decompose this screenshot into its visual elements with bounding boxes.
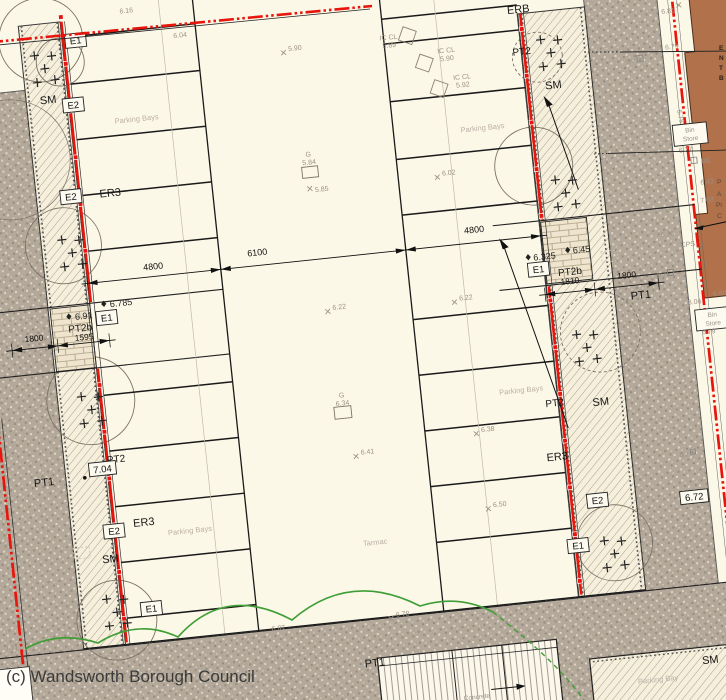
level-678-b: 6.78	[396, 611, 410, 619]
plan-rotated-group: 4800 6100 4800 1800 1595 1810 1800	[0, 0, 726, 700]
label-sm-left-top: SM	[39, 94, 57, 108]
label-7-04: 7.04	[93, 463, 113, 476]
label-e1-right-low: E1	[572, 541, 585, 553]
edge-note-t2: N	[719, 55, 724, 62]
gully-g-2: G	[339, 392, 345, 400]
label-6-72: 6.72	[684, 491, 704, 504]
label-sm-right-mid: SM	[592, 396, 610, 410]
level-691: 6.91	[74, 310, 92, 322]
level-676: 6.76	[660, 231, 674, 239]
label-e2-left-top: E2	[67, 100, 80, 112]
label-pt1-right: PT1	[630, 289, 651, 303]
copyright-text: (c) Wandsworth Borough Council	[6, 667, 255, 686]
dim-6100: 6100	[247, 247, 268, 259]
dim-1800-left: 1800	[24, 332, 44, 344]
level-650: 6.50	[493, 501, 507, 509]
dim-1800-right: 1800	[617, 269, 637, 281]
level-604: 6.04	[173, 32, 187, 40]
label-gv-1: GV	[626, 58, 637, 66]
label-re: RE	[701, 158, 712, 166]
label-er3-left-low: ER3	[133, 516, 156, 530]
label-pt1-left: PT1	[33, 476, 54, 490]
edge-note-t1: E	[719, 45, 724, 52]
ic-1-level: 5.89	[382, 42, 396, 50]
edge-note-m1: P	[717, 179, 721, 186]
label-pt2-right-mid: PT2	[545, 397, 565, 410]
level-679-b: 6.79	[702, 328, 716, 336]
label-e1-left-path: E1	[100, 313, 113, 325]
level-584: 5.84	[302, 159, 316, 167]
label-e1-right-path: E1	[532, 264, 545, 276]
level-602: 6.02	[442, 169, 456, 177]
label-er3-left-top: ER3	[99, 186, 122, 200]
level-711: 7.11	[5, 645, 19, 653]
label-gv-2: GV	[656, 272, 667, 280]
level-806: 8.06	[688, 298, 702, 306]
label-sm-bottom-right: SM	[702, 654, 720, 668]
label-erb: ERB	[506, 3, 530, 17]
edge-note-m3: Pl	[716, 202, 722, 209]
ic-2-level: 5.90	[440, 55, 454, 63]
label-bin-1: Bin	[685, 127, 695, 135]
label-e2-left-low: E2	[108, 526, 121, 538]
edge-note-t3: T	[719, 65, 723, 72]
site-plan-drawing: 4800 6100 4800 1800 1595 1810 1800	[0, 0, 726, 700]
level-645: 6.45	[572, 244, 590, 256]
edge-note-t4: B	[719, 75, 724, 82]
level-643: 6.43	[700, 178, 714, 186]
level-680: 6.80	[713, 290, 726, 298]
label-bin-2: Bin	[707, 311, 717, 319]
ic-3-level: 5.92	[456, 81, 470, 89]
level-679-a: 6.79	[665, 43, 679, 51]
label-sm-right-top: SM	[545, 79, 563, 93]
edge-note-m4: C	[717, 213, 722, 220]
label-e2-left-mid: E2	[65, 192, 78, 204]
level-641: 6.41	[360, 448, 374, 456]
level-622-c: 6.22	[332, 304, 346, 312]
dim-4800-right: 4800	[464, 224, 485, 236]
level-634: 6.34	[335, 400, 349, 408]
label-sm-left-low: SM	[102, 553, 120, 567]
label-e2-right: E2	[591, 495, 604, 507]
label-er3-right: ER3	[546, 450, 569, 464]
site-plan-viewport: 4800 6100 4800 1800 1595 1810 1800	[0, 0, 726, 700]
label-pt2-right-top: PT2	[512, 46, 532, 59]
label-gv-3: GV	[679, 451, 690, 459]
edge-note-m2: A	[717, 191, 722, 198]
level-687: 6.87	[271, 625, 285, 633]
label-e1-left-bottom: E1	[145, 603, 158, 615]
dim-4800-left: 4800	[143, 260, 164, 272]
level-616: 6.16	[119, 7, 133, 15]
level-622-r: 6.22	[459, 294, 473, 302]
label-pt1-bottom: PT1	[364, 656, 385, 670]
level-703: 7.03	[700, 197, 714, 205]
level-681: 6.81	[661, 8, 675, 16]
level-638: 6.38	[481, 426, 495, 434]
level-590: 5.90	[288, 45, 302, 53]
level-585: 5.85	[315, 186, 329, 194]
gully-g-1: G	[305, 151, 311, 159]
